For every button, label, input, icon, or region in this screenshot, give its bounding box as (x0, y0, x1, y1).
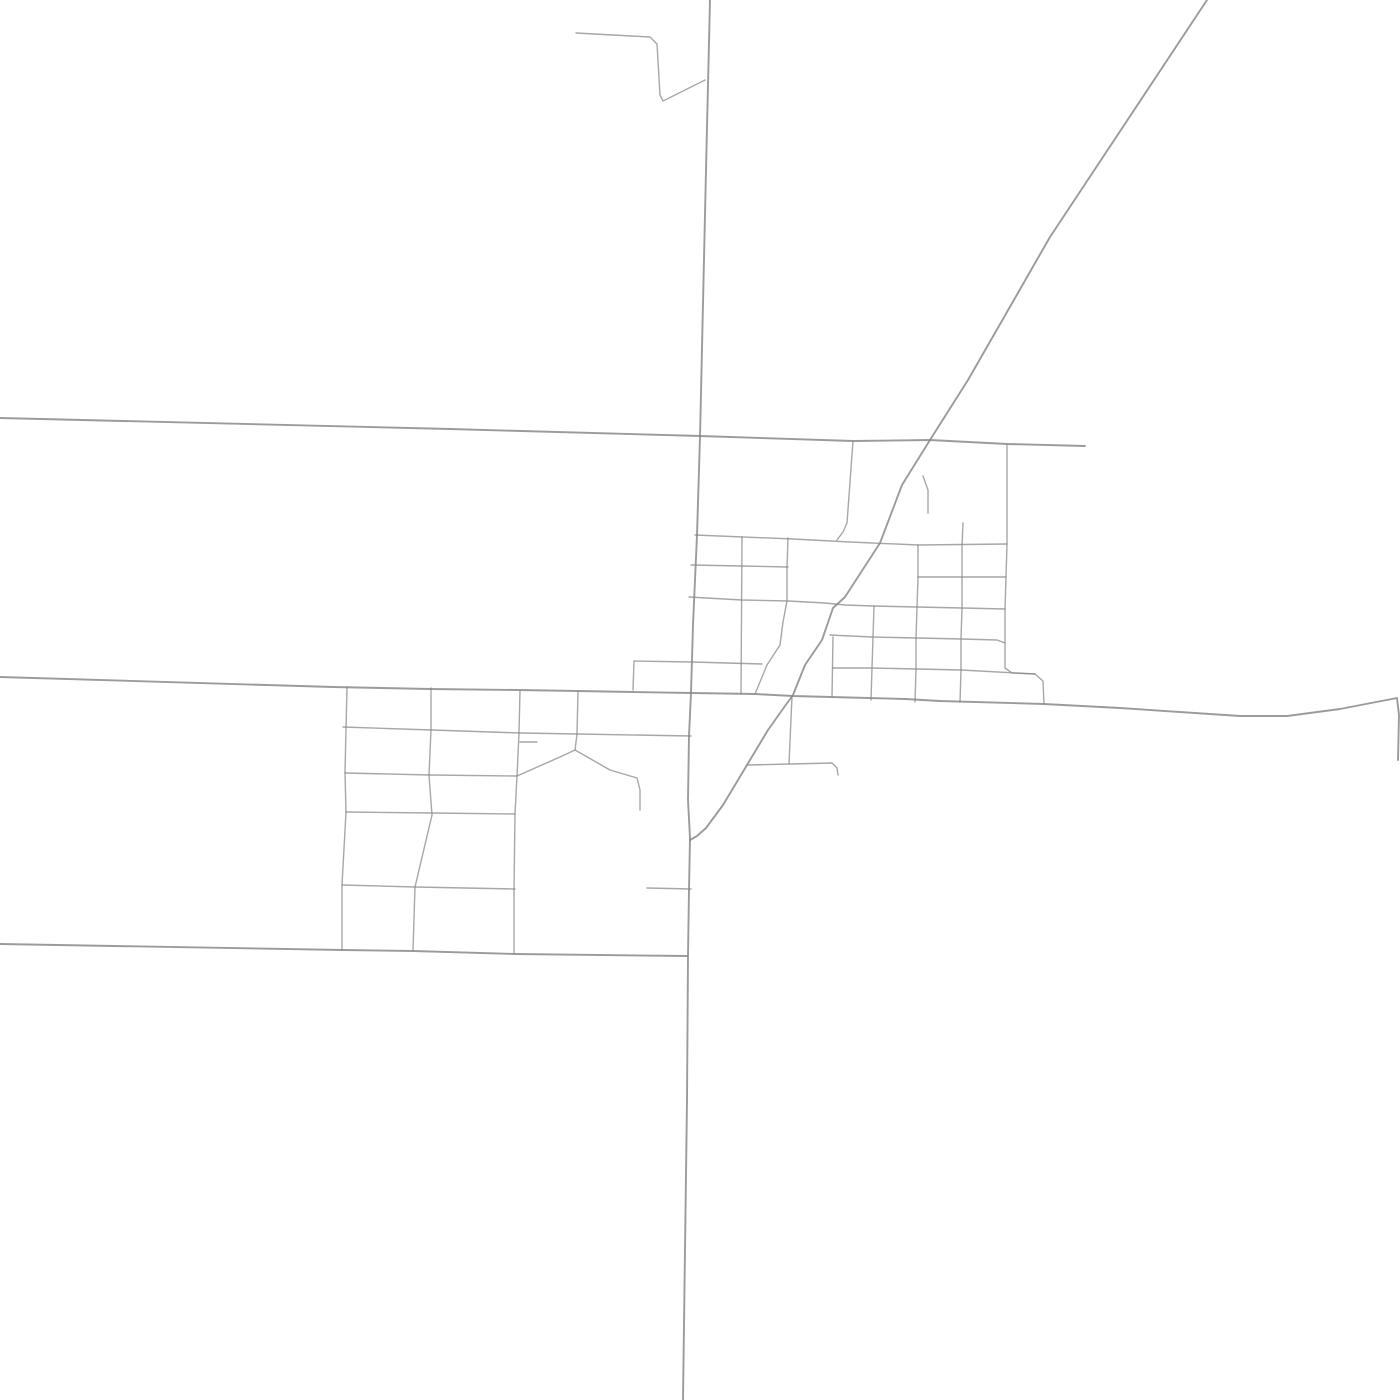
road-dead-end-spur-y888 (647, 888, 691, 889)
map-viewport[interactable] (0, 0, 1400, 1400)
road-vertical-x742 (741, 537, 742, 694)
road-vertical-x833 (832, 637, 833, 697)
map-canvas[interactable] (0, 0, 1400, 1400)
map-background (0, 0, 1400, 1400)
